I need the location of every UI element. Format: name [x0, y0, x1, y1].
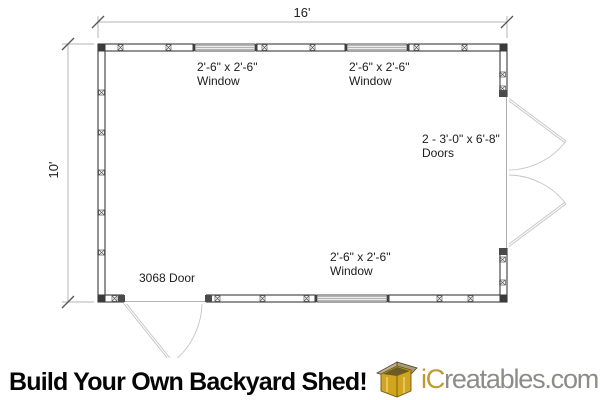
- shed-logo-icon: [375, 360, 419, 398]
- single-door-label: 3068 Door: [139, 271, 195, 285]
- footer-headline: Build Your Own Backyard Shed!: [9, 368, 367, 397]
- wall-openings: [124, 42, 509, 304]
- window-label-top-left: 2'-6" x 2'-6" Window: [197, 60, 257, 88]
- brand-prefix-text: iC: [421, 364, 444, 394]
- window-size-text: 2'-6" x 2'-6": [349, 60, 409, 74]
- door-size-text: 2 - 3'-0" x 6'-8": [422, 132, 500, 146]
- corner-posts: [98, 44, 507, 302]
- exterior-walls: [98, 44, 507, 302]
- floor-plan: 16' 10' 2'-6" x 2'-6" Window 2'-6" x 2'-…: [0, 0, 600, 366]
- window-label-top-right: 2'-6" x 2'-6" Window: [349, 60, 409, 88]
- window-type-text: Window: [330, 264, 390, 278]
- window-size-text: 2'-6" x 2'-6": [197, 60, 257, 74]
- window-type-text: Window: [197, 74, 257, 88]
- window-label-bottom: 2'-6" x 2'-6" Window: [330, 250, 390, 278]
- dimension-height-label: 10': [47, 150, 61, 190]
- floor-plan-drawing: [0, 0, 600, 366]
- door-type-text: 3068 Door: [139, 271, 195, 285]
- window-size-text: 2'-6" x 2'-6": [330, 250, 390, 264]
- brand-logo[interactable]: iCreatables.com: [375, 359, 598, 399]
- brand-text: iCreatables.com: [421, 364, 598, 395]
- brand-suffix-text: reatables.com: [444, 364, 598, 394]
- window-type-text: Window: [349, 74, 409, 88]
- double-door-label: 2 - 3'-0" x 6'-8" Doors: [422, 132, 500, 160]
- dimension-width-label: 16': [282, 6, 322, 20]
- door-type-text: Doors: [422, 146, 500, 160]
- wall-studs: [99, 45, 506, 302]
- dimension-ticks: [62, 16, 513, 308]
- footer-banner: Build Your Own Backyard Shed! iCreatable…: [0, 358, 600, 400]
